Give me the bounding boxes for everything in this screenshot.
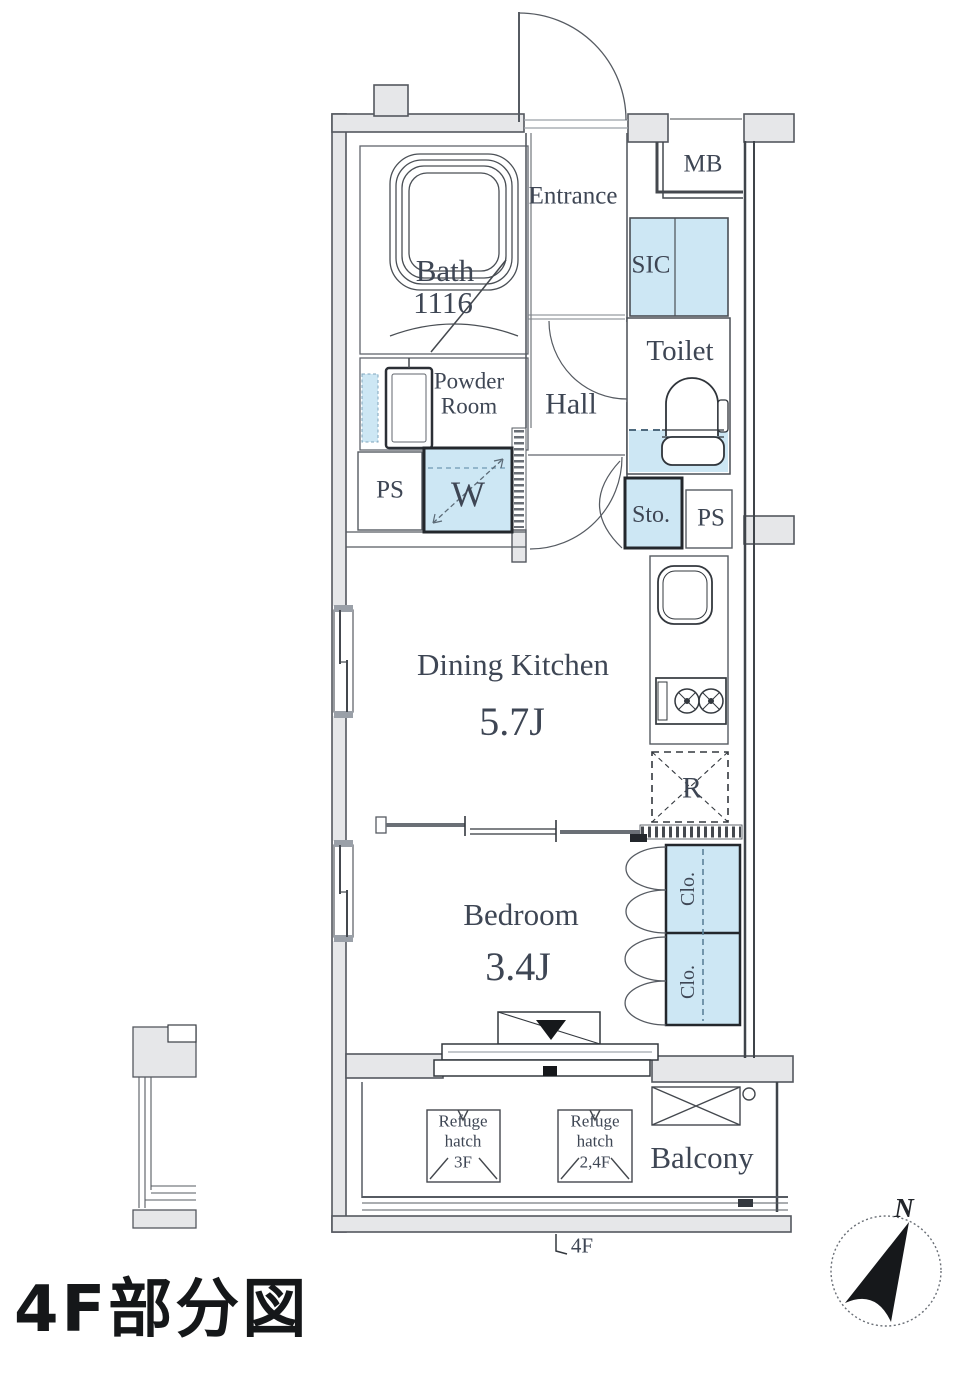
bedroom-label: Bedroom — [463, 898, 578, 932]
adjacent-unit-fragment — [133, 1025, 196, 1228]
plan-caption: 4F部分図 — [14, 1258, 309, 1350]
floor-marker-tick — [556, 1234, 567, 1254]
bath-label: Bath — [416, 254, 475, 288]
entrance-label: Entrance — [529, 182, 618, 210]
bath-size-label: 1116 — [413, 286, 473, 320]
toilet-label: Toilet — [646, 336, 713, 368]
refuge-hatch-1-line3: 3F — [438, 1152, 487, 1172]
right-wall — [745, 141, 777, 1212]
closet-upper-label: Clo. — [677, 872, 699, 906]
bedroom-window — [333, 840, 357, 942]
ac-unit-space — [652, 1087, 755, 1125]
compass — [831, 1216, 941, 1326]
closet-lower-label: Clo. — [677, 965, 699, 999]
pipe-space-right-label: PS — [697, 504, 725, 532]
refuge-hatch-2-label: Refuge hatch 2,4F — [570, 1111, 619, 1172]
refuge-hatch-1-label: Refuge hatch 3F — [438, 1111, 487, 1172]
refuge-hatch-2-line1: Refuge — [570, 1111, 619, 1131]
powder-room-label-2: Room — [441, 393, 497, 418]
closet-folding-doors — [625, 847, 666, 1025]
refuge-hatch-1-line2: hatch — [438, 1132, 487, 1152]
meter-box-label: MB — [684, 150, 723, 178]
washer-label: W — [451, 475, 485, 515]
refuge-hatch-1-line1: Refuge — [438, 1111, 487, 1131]
pipe-space-left-label: PS — [376, 476, 404, 504]
storage-label: Sto. — [632, 502, 670, 528]
dining-kitchen-label: Dining Kitchen — [417, 648, 609, 682]
balcony-label: Balcony — [650, 1141, 753, 1175]
powder-room-label-1: Powder — [434, 368, 504, 393]
north-label: N — [894, 1194, 914, 1224]
compass-needle — [845, 1222, 909, 1322]
hall-label: Hall — [545, 388, 597, 421]
bath-room — [360, 146, 528, 354]
balcony-sliding-window — [434, 1044, 658, 1076]
bedroom-size-label: 3.4J — [485, 945, 551, 989]
dining-kitchen-size-label: 5.7J — [479, 700, 545, 744]
floor-marker-label: 4F — [571, 1234, 593, 1257]
bedroom-partition — [376, 816, 647, 842]
entrance-door — [519, 12, 626, 122]
refrigerator-label: R — [682, 772, 702, 805]
bedroom-sill-marker — [498, 1012, 600, 1044]
floor-plan-page: Entrance MB Bath 1116 SIC Toilet Powder … — [0, 0, 960, 1375]
refuge-hatch-2-line2: hatch — [570, 1132, 619, 1152]
dk-window — [333, 605, 357, 718]
shoe-closet-label: SIC — [632, 251, 671, 279]
washbasin-icon — [386, 368, 432, 448]
dk-door — [530, 457, 622, 549]
refuge-hatch-2-line3: 2,4F — [570, 1152, 619, 1172]
